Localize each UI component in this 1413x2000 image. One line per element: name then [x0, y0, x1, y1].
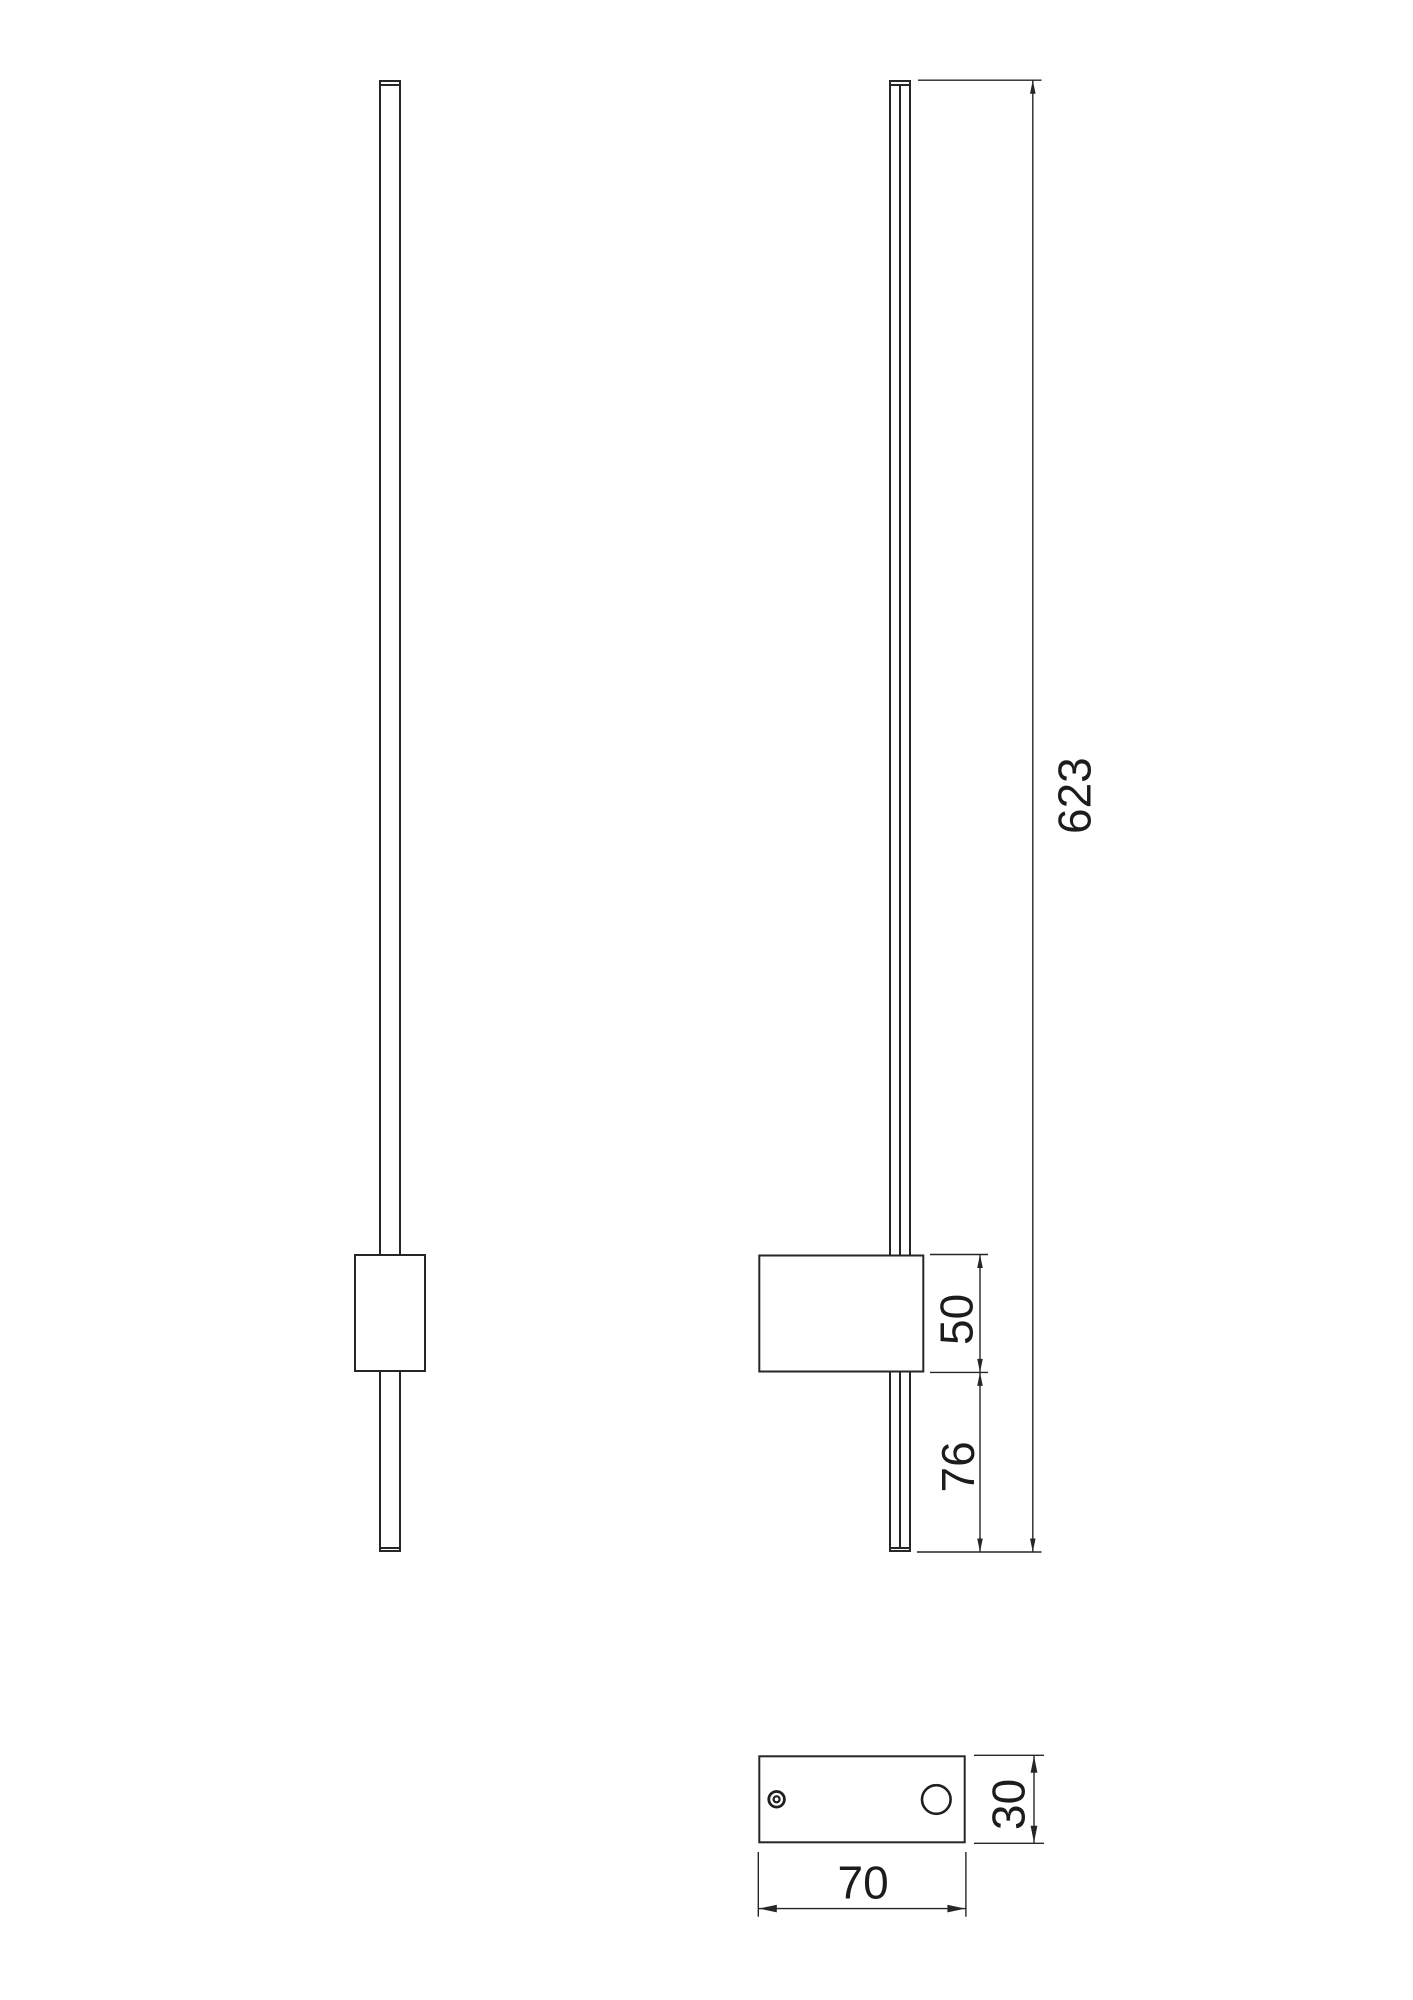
svg-text:50: 50: [931, 1294, 983, 1345]
svg-text:76: 76: [932, 1441, 984, 1492]
svg-text:30: 30: [983, 1779, 1035, 1830]
svg-text:70: 70: [838, 1857, 889, 1909]
svg-text:623: 623: [1049, 757, 1101, 834]
